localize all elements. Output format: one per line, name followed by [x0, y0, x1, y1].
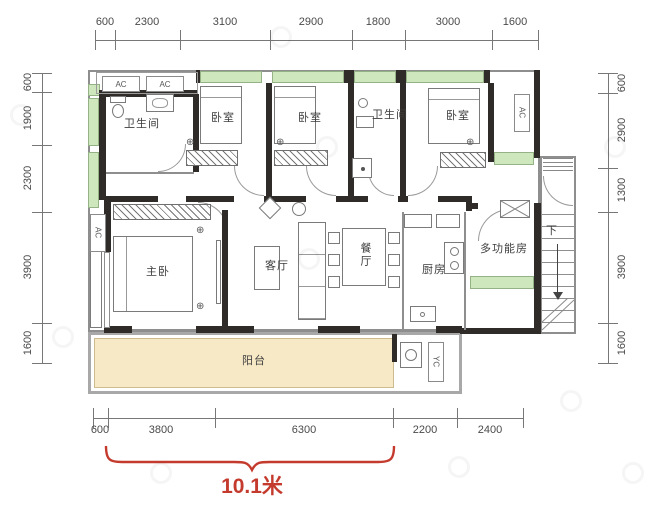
- stair-landing-grille: [543, 158, 573, 172]
- dim-right-1: 600: [616, 61, 628, 105]
- dim-bottom-2: 3800: [141, 424, 181, 436]
- washing-machine: [400, 342, 422, 368]
- window-strip: [88, 98, 99, 146]
- dim-tick: [598, 363, 618, 364]
- window-strip: [88, 152, 99, 208]
- window-strip: [272, 71, 344, 83]
- dim-top-5: 1800: [358, 16, 398, 28]
- ac-unit-box: AC: [514, 94, 530, 132]
- floor-plan-canvas: 600 2300 3100 2900 1800 3000 1600 600 19…: [0, 0, 650, 508]
- room-label-kitchen: 厨房: [412, 261, 456, 277]
- total-width-label: 10.1米: [185, 470, 319, 500]
- dim-bottom-1: 600: [80, 424, 120, 436]
- dim-tick: [32, 73, 52, 74]
- shower: [352, 158, 372, 178]
- wall-segment: [336, 196, 368, 202]
- plant: [292, 202, 306, 216]
- room-label-multi-function: 多功能房: [474, 240, 534, 256]
- wall-segment: [396, 70, 406, 83]
- wall-segment: [266, 83, 272, 198]
- window-strip: [354, 71, 396, 83]
- chair: [388, 276, 400, 288]
- watermark-icon: [10, 104, 32, 126]
- yc-label: YC: [432, 356, 441, 367]
- wall-segment: [460, 328, 540, 334]
- wall-segment: [318, 326, 360, 333]
- chair: [328, 276, 340, 288]
- ac-label: AC: [159, 80, 170, 89]
- window-strip: [200, 71, 262, 83]
- wall-segment: [488, 83, 494, 162]
- lamp-symbol: ⊕: [186, 138, 194, 148]
- dim-tick: [598, 73, 618, 74]
- dim-tick: [523, 408, 524, 428]
- dim-tick: [598, 93, 618, 94]
- shaft-x-icon: [501, 201, 529, 217]
- dim-tick: [598, 323, 618, 324]
- watermark-icon: [150, 462, 172, 484]
- dim-tick: [598, 212, 618, 213]
- watermark-icon: [298, 248, 320, 270]
- dim-bottom-4: 2200: [405, 424, 445, 436]
- room-label-balcony: 阳台: [222, 352, 286, 368]
- ac-label: AC: [94, 227, 103, 238]
- watermark-icon: [622, 462, 644, 484]
- ac-unit-box: AC: [90, 214, 106, 252]
- dim-tick: [215, 408, 216, 428]
- wall-segment: [468, 203, 478, 209]
- wall-segment: [534, 70, 540, 158]
- wall-thin: [106, 172, 194, 174]
- dim-line-left: [42, 73, 43, 363]
- dim-line-right: [608, 73, 609, 363]
- sliding-door: [132, 329, 196, 331]
- toilet: [110, 96, 126, 103]
- dim-tick: [32, 323, 52, 324]
- window-strip: [494, 152, 534, 165]
- ac-label: AC: [115, 80, 126, 89]
- dim-right-3: 1300: [616, 168, 628, 212]
- yc-unit-box: YC: [428, 342, 444, 382]
- dim-right-4: 3900: [616, 245, 628, 289]
- ac-label: AC: [518, 107, 527, 118]
- lamp-symbol: ⊕: [196, 226, 204, 236]
- kitchen-sink: [410, 306, 436, 322]
- dim-tick: [393, 408, 394, 428]
- wall-segment: [186, 196, 234, 202]
- watermark-icon: [316, 136, 338, 158]
- chair: [328, 232, 340, 244]
- stair-arrow: [557, 244, 558, 294]
- dim-line-bottom: [93, 418, 523, 419]
- dim-tick: [492, 30, 493, 50]
- master-window: [104, 252, 110, 328]
- dim-tick: [538, 30, 539, 50]
- dim-tick: [457, 408, 458, 428]
- dim-tick: [95, 30, 96, 50]
- dim-tick: [32, 363, 52, 364]
- dim-top-6: 3000: [428, 16, 468, 28]
- wall-segment: [222, 210, 228, 326]
- dim-top-7: 1600: [495, 16, 535, 28]
- window-strip: [470, 276, 534, 289]
- wall-segment: [484, 70, 490, 83]
- lamp-symbol: ⊕: [276, 138, 284, 148]
- window-strip: [406, 71, 484, 83]
- room-label-bathroom-2: 卫生间: [360, 106, 420, 122]
- room-label-living-room: 客厅: [255, 257, 299, 273]
- chair: [388, 232, 400, 244]
- watermark-icon: [604, 136, 626, 158]
- dim-tick: [115, 30, 116, 50]
- wall-thin: [402, 212, 404, 330]
- dim-tick: [32, 145, 52, 146]
- dim-tick: [32, 92, 52, 93]
- bay-window-ledge: [90, 246, 102, 328]
- dim-line-top: [95, 40, 538, 41]
- lamp-symbol: ⊕: [466, 138, 474, 148]
- sliding-door: [360, 329, 436, 331]
- stairs-down-label: 下: [544, 222, 560, 238]
- wall-segment: [534, 203, 541, 334]
- stair-break-line: [542, 298, 574, 332]
- room-label-bedroom-1: 卧室: [200, 109, 246, 125]
- wall-thin: [464, 212, 466, 330]
- dim-tick: [32, 212, 52, 213]
- ac-unit-box: AC: [146, 76, 184, 92]
- dim-top-3: 3100: [205, 16, 245, 28]
- watermark-icon: [270, 26, 292, 48]
- room-label-bedroom-2: 卧室: [287, 109, 333, 125]
- dim-top-1: 600: [90, 16, 120, 28]
- chair: [328, 254, 340, 266]
- dim-tick: [352, 30, 353, 50]
- wardrobe: [440, 152, 486, 168]
- wall-segment: [348, 83, 354, 198]
- shaft-box: [500, 200, 530, 218]
- dim-left-5: 1600: [22, 321, 34, 365]
- dim-top-4: 2900: [291, 16, 331, 28]
- wall-segment: [99, 90, 106, 200]
- wall-segment: [436, 326, 462, 333]
- room-label-bathroom-1: 卫生间: [112, 115, 172, 131]
- room-label-master-bedroom: 主卧: [136, 263, 180, 279]
- kitchen-cabinet: [404, 214, 432, 228]
- ac-unit-box: AC: [102, 76, 140, 92]
- wall-segment: [392, 334, 397, 362]
- dim-bottom-5: 2400: [470, 424, 510, 436]
- watermark-icon: [560, 390, 582, 412]
- wall-segment: [106, 196, 158, 202]
- wall-segment: [344, 70, 354, 83]
- tv-cabinet: [216, 240, 221, 304]
- dim-right-5: 1600: [616, 321, 628, 365]
- dim-left-4: 3900: [22, 245, 34, 289]
- chair: [388, 254, 400, 266]
- dim-tick: [405, 30, 406, 50]
- wall-segment: [196, 326, 254, 333]
- room-label-dining-room: 餐厅: [357, 242, 373, 268]
- sliding-door: [254, 329, 318, 331]
- room-label-bedroom-3: 卧室: [435, 107, 481, 123]
- sofa: [298, 222, 326, 320]
- sink: [146, 94, 174, 112]
- wall-segment: [400, 83, 406, 198]
- wall-segment: [398, 196, 408, 202]
- lamp-symbol: ⊕: [196, 302, 204, 312]
- dim-left-3: 2300: [22, 156, 34, 200]
- watermark-icon: [448, 456, 470, 478]
- watermark-icon: [52, 326, 74, 348]
- wall-segment: [438, 196, 468, 202]
- dim-bottom-3: 6300: [284, 424, 324, 436]
- wardrobe: [113, 204, 211, 220]
- dim-tick: [598, 168, 618, 169]
- wardrobe: [186, 150, 238, 166]
- dim-tick: [180, 30, 181, 50]
- fridge: [436, 214, 460, 228]
- dim-top-2: 2300: [127, 16, 167, 28]
